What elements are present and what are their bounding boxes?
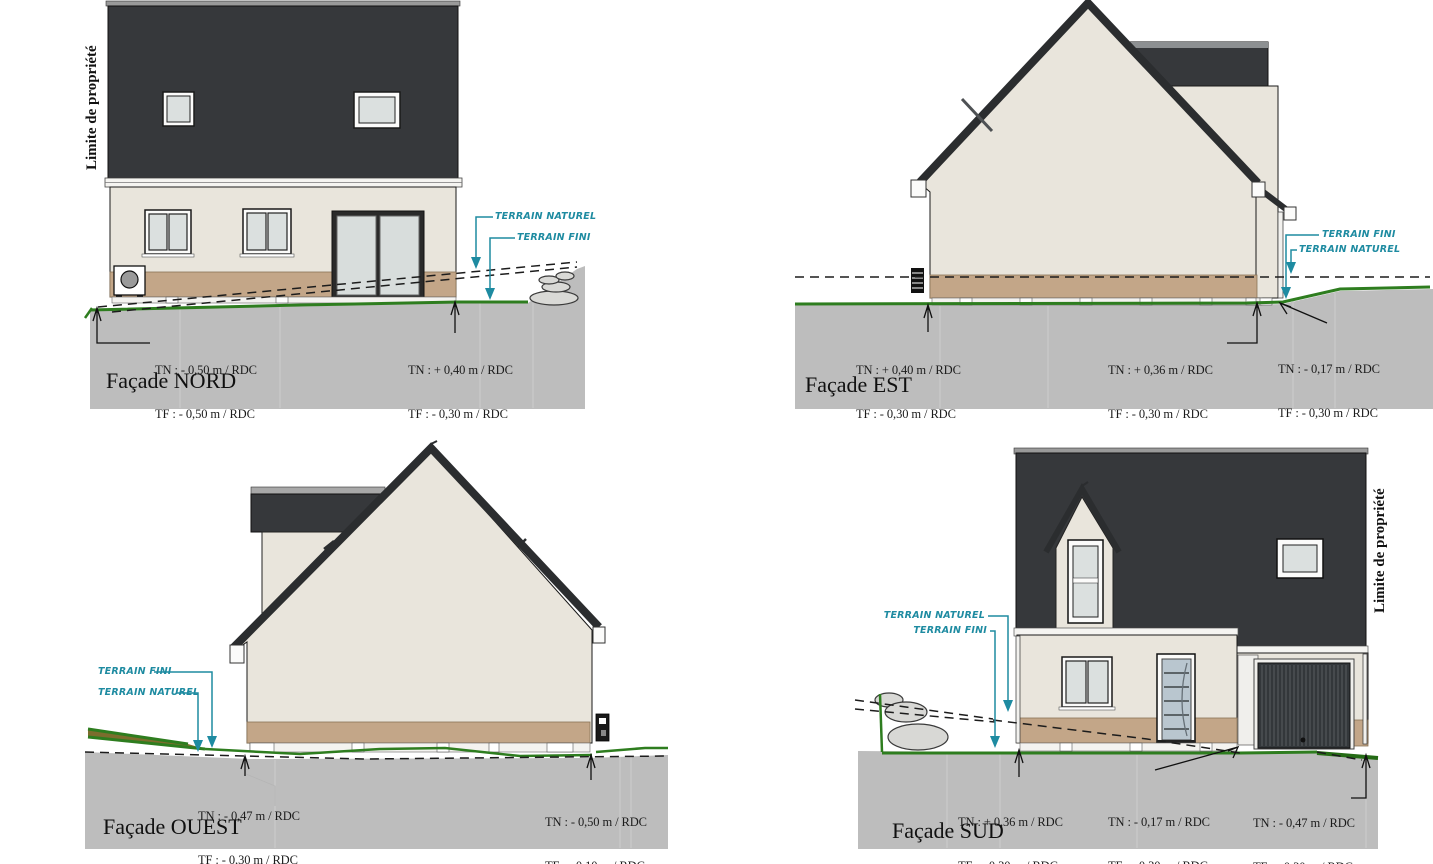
sud-terrain-green-line (882, 752, 1317, 753)
facade-nord-title: Façade NORD (106, 368, 236, 394)
terrain-fini-label-sud: TERRAIN FINI (913, 625, 987, 636)
sud-base-band-left (1017, 718, 1237, 743)
nord-terrain-leaders (476, 217, 515, 288)
est-rear-roof-edge (1118, 42, 1268, 48)
tf-value: TF : - 0,50 m / RDC (155, 407, 257, 422)
sud-front-door (1157, 654, 1195, 743)
terrain-fini-label-ouest: TERRAIN FINI (98, 666, 172, 677)
terrain-fini-label-nord: TERRAIN FINI (517, 232, 591, 243)
nord-terrain-fini-arrow-icon (485, 288, 495, 300)
nord-roof-ridge-cap (106, 1, 460, 6)
ouest-terrain-fini-arrow-icon (207, 736, 217, 748)
ouest-terrain-leaders (154, 672, 212, 740)
ouest-rear-roof-edge (251, 487, 385, 494)
est-terrain-leaders (1286, 235, 1319, 287)
tn-value: TN : - 0,17 m / RDC (1108, 815, 1210, 830)
est-gutter-right (1252, 182, 1265, 197)
tf-value: TF : - 0,30 m / RDC (1253, 860, 1355, 864)
property-limit-label-sud: Limite de propriété (1372, 488, 1389, 613)
nord-pier (276, 297, 288, 303)
tf-value: TF : - 0,30 m / RDC (198, 853, 300, 864)
ouest-berm-lines (88, 729, 205, 749)
tn-value: TN : - 0,17 m / RDC (1278, 362, 1380, 377)
nord-roof-window-left (163, 92, 194, 126)
elevation-drawing-sheet: Limite de propriété Limite de propriété … (0, 0, 1433, 864)
level-mark-est-middle: TN : + 0,36 m / RDC TF : - 0,30 m / RDC (1108, 333, 1213, 451)
est-terrain-naturel-arrow-icon (1286, 262, 1296, 274)
level-mark-sud-right: TN : - 0,47 m / RDC TF : - 0,30 m / RDC (1253, 786, 1355, 864)
tn-value: TN : - 0,47 m / RDC (1253, 816, 1355, 831)
facade-ouest-title: Façade OUEST (103, 814, 242, 840)
ouest-terrain-fini-leader (154, 672, 212, 736)
ouest-meter-box (596, 714, 609, 741)
level-mark-est-right: TN : - 0,17 m / RDC TF : - 0,30 m / RDC (1278, 332, 1380, 450)
sud-garage-door (1254, 659, 1354, 749)
ouest-gutter-left (230, 645, 244, 663)
tf-value: TF : - 0,30 m / RDC (1108, 407, 1213, 422)
ouest-green-right (596, 748, 668, 752)
sud-terrain-naturel-arrow-icon (1003, 700, 1013, 712)
sud-roof-window (1277, 539, 1323, 578)
ouest-gutter-right (593, 627, 605, 643)
sud-rocks (875, 693, 948, 750)
nord-window-left (142, 210, 194, 257)
nord-roof-window-right (354, 92, 400, 128)
sud-downpipe-right (1363, 654, 1367, 744)
facade-est-title: Façade EST (805, 372, 912, 398)
terrain-naturel-label-ouest: TERRAIN NATUREL (98, 687, 199, 698)
level-mark-ouest-right: TN : - 0,50 m / RDC TF : - 0,10 m / RDC (545, 785, 647, 864)
nord-terrain-fini-leader (490, 238, 515, 288)
nord-window-middle (240, 209, 294, 257)
tn-value: TN : + 0,36 m / RDC (1108, 363, 1213, 378)
terrain-naturel-label-est: TERRAIN NATUREL (1299, 244, 1400, 255)
est-downpipe (1278, 212, 1283, 298)
tn-value: TN : + 0,40 m / RDC (408, 363, 513, 378)
nord-sliding-door (332, 211, 424, 301)
terrain-naturel-label-nord: TERRAIN NATUREL (495, 211, 596, 222)
tf-value: TF : - 0,30 m / RDC (1108, 859, 1210, 864)
sud-window (1059, 657, 1115, 710)
tf-value: TF : - 0,30 m / RDC (856, 407, 961, 422)
tf-value: TF : - 0,30 m / RDC (408, 407, 513, 422)
level-mark-sud-middle: TN : - 0,17 m / RDC TF : - 0,30 m / RDC (1108, 785, 1210, 864)
est-terrain-naturel-leader (1291, 250, 1297, 262)
nord-roof (108, 6, 458, 178)
property-limit-label-nord: Limite de propriété (84, 45, 101, 170)
sud-terrain-fini-arrow-icon (990, 736, 1000, 748)
sud-garage-handle (1301, 738, 1306, 743)
est-base-band (930, 275, 1257, 298)
tf-value: TF : - 0,30 m / RDC (958, 859, 1063, 864)
tn-value: TN : - 0,50 m / RDC (545, 815, 647, 830)
terrain-naturel-label-sud: TERRAIN NATUREL (884, 610, 985, 621)
tf-value: TF : - 0,30 m / RDC (1278, 406, 1380, 421)
nord-heat-pump (114, 266, 145, 298)
terrain-fini-label-est: TERRAIN FINI (1322, 229, 1396, 240)
sud-terrain-naturel-leader (988, 616, 1008, 700)
nord-terrain-naturel-arrow-icon (471, 257, 481, 269)
level-mark-nord-right: TN : + 0,40 m / RDC TF : - 0,30 m / RDC (408, 333, 513, 451)
est-gutter-left (911, 180, 926, 197)
sud-terrain-fini-leader (990, 631, 995, 736)
sud-downpipe-left (1016, 636, 1020, 743)
ouest-base-band (247, 722, 590, 743)
est-vent-grille (911, 268, 924, 293)
facade-sud-title: Façade SUD (892, 818, 1004, 844)
tf-value: TF : - 0,10 m / RDC (545, 859, 647, 864)
ouest-terrain-naturel-leader (176, 693, 198, 740)
est-gutter-lower (1284, 207, 1296, 220)
